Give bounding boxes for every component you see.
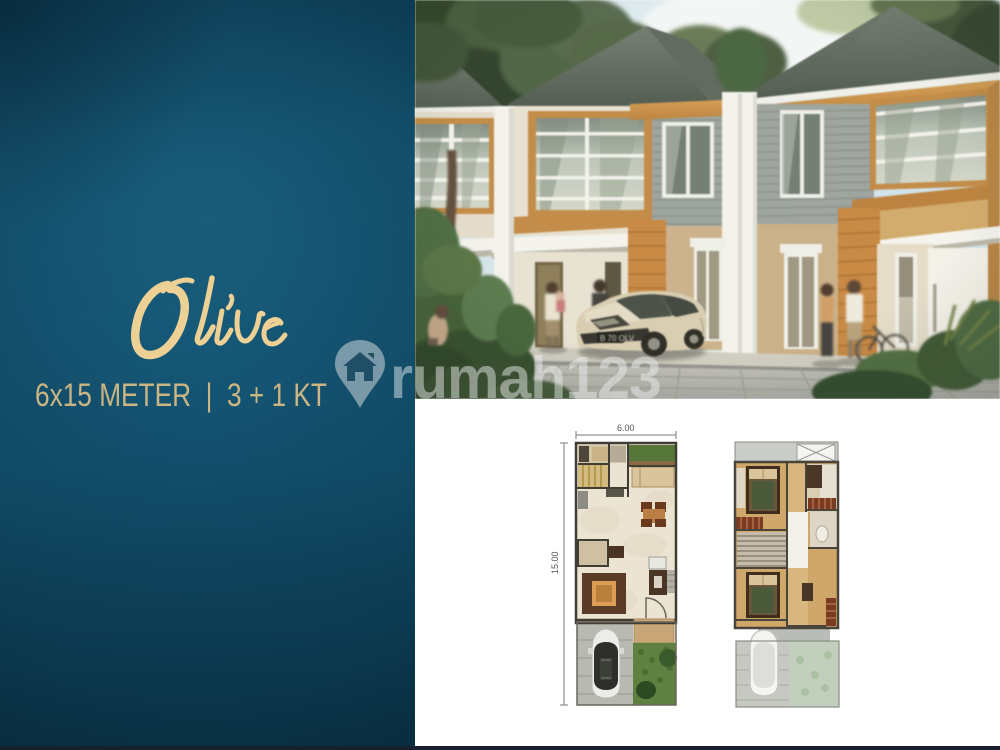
- svg-text:rumah123: rumah123: [390, 345, 661, 411]
